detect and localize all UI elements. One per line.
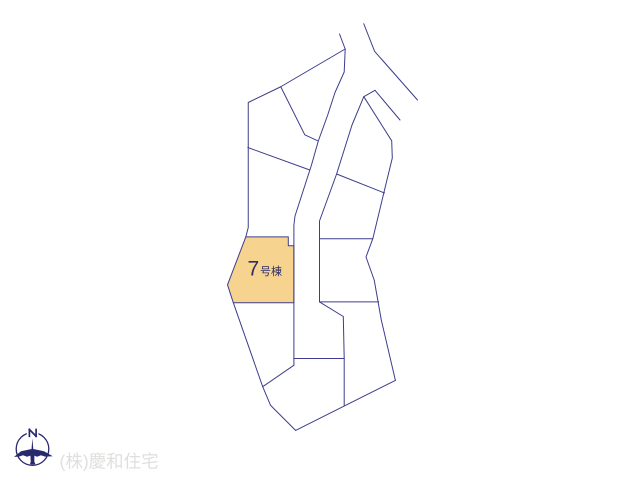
svg-text:号棟: 号棟 [260, 264, 282, 278]
svg-text:(株)慶和住宅: (株)慶和住宅 [60, 451, 159, 471]
svg-text:7: 7 [248, 258, 260, 281]
